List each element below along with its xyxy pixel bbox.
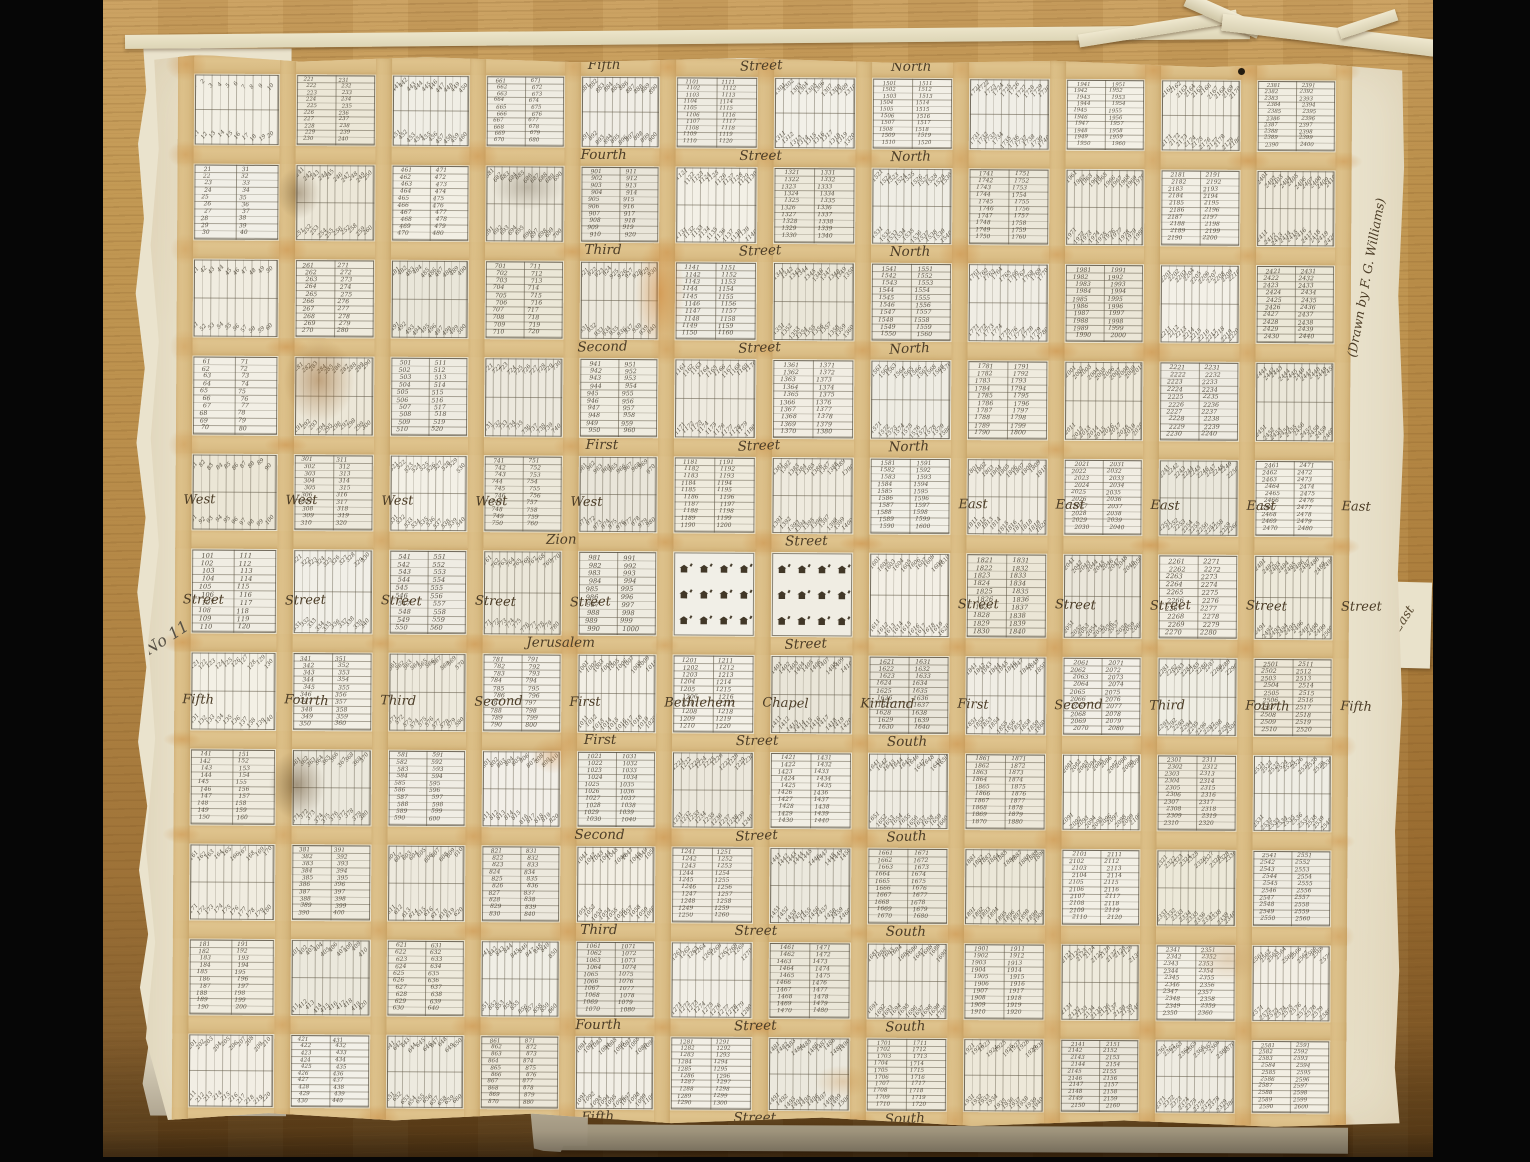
lot-number-column: 1831183218331834183518361837183818391840 [1009,556,1042,635]
city-block: 2221222222232224222522262227222822292230… [1160,362,1238,440]
lot-number: 240 [338,137,370,142]
lot-number: 1330 [781,234,814,240]
city-block: 1211311221321231331241341251351261361271… [191,652,275,730]
lot-number: 826 [491,884,523,890]
lot-number: 1713 [913,1055,945,1061]
temple-icon [720,565,729,573]
lot-number: 305 [304,486,336,492]
street-label-vertical: East [1330,441,1353,557]
lot-number-column: 661662663664665666667668669670 [492,78,524,144]
lot-number: 2021 [1074,462,1106,468]
street-label-text: East [1246,499,1275,514]
temple-icon [679,590,688,598]
lot-number: 2182 [1171,180,1203,186]
lot-number: 1960 [1111,142,1143,148]
lot-number-column: 831832833834835836837838839840 [523,848,555,919]
temple-mark [730,564,733,568]
street-label-vertical: West [172,434,195,550]
street-label-vertical: Street [464,536,487,652]
lot-number: 110 [200,623,235,630]
lot-number: 2040 [1109,526,1141,533]
lot-number: 1230 [742,754,753,768]
lot-number-column: 1191119211931194119511961197119811991200 [717,460,750,531]
lot-number: 2590 [1259,1104,1291,1110]
lot-number: 672 [532,85,564,92]
lot-number: 1915 [1009,975,1041,982]
lot-number-column: 1941194219431944194519461947194819491950 [1072,82,1104,148]
temple-mark [788,564,791,568]
wood-table-surface: 1112123134145156167178189191020221222223… [103,0,1433,1157]
lot-number: 475 [433,197,464,204]
lot-number-column: 431432433434435436437438439440 [332,1037,364,1105]
lot-number: 2480 [1297,527,1329,534]
lot-number: 1670 [876,915,909,922]
street-label-vertical: West [370,436,393,552]
lot-number: 750 [491,522,523,530]
city-block: 1321132213231324132513261327132813291330… [774,168,854,243]
street-label-horizontal: First [537,437,667,454]
city-block: 1501150215031504150515061507150815091510… [873,79,952,149]
lot-number-column: 1741174217431744174517461747174817491750 [975,171,1008,242]
lot-number: 2111 [1107,852,1139,859]
lot-number: 2343 [1163,962,1195,969]
city-block: 6416516426526436536446546456556466566476… [387,1036,463,1108]
lot-number: 1752 [1014,179,1046,185]
lot-number: 1910 [970,1011,1002,1017]
lot-number: 1120 [719,139,752,146]
lot-number: 1160 [718,330,751,338]
lot-number: 864 [487,1059,519,1065]
lot-number: 870 [487,1100,519,1107]
lot-number: 1363 [780,377,813,383]
lot-number: 1196 [720,496,753,502]
lot-number: 1746 [978,207,1010,213]
lot-number-column: 501502503504505506507508509510 [396,360,428,434]
street-label-text: Third [1149,698,1185,713]
lot-number: 1791 [1013,364,1045,371]
lot-number: 1600 [915,525,947,532]
lot-number-column: 2271227222732274227522762277227822792280 [1200,558,1232,637]
temple-site [700,563,711,573]
lot-number-column: 1581158215831584158515861587158815891590 [876,461,909,532]
lot-number: 1710 [875,1102,907,1108]
lot-number: 720 [527,329,559,337]
temple-square-block [674,552,755,635]
lot-number: 906 [588,205,620,212]
city-block: 1011021031041051061071081091101111121131… [192,549,277,633]
lot-number: 2425 [1266,298,1298,304]
lot-number: 2588 [1258,1091,1290,1097]
city-block: 1621162216231624162516261627162816291630… [869,657,948,734]
lot-number: 1650 [938,755,948,769]
lot-number: 74 [241,381,276,388]
city-block: 1341135113421352134313531344135413451355… [774,263,854,340]
temple-icon [699,616,708,624]
lot-number-column: 71727374757677787980 [237,359,272,433]
lot-number: 912 [626,177,658,183]
lot-number-column: 1431143214331434143514361437143814391440 [813,755,846,826]
lot-number-column: 711712713714715716717718719720 [526,263,558,336]
lot-number: 1490 [839,1039,850,1053]
lot-number-column: 221222223224225226227228229230 [302,77,334,143]
lot-number-column: 1661166216631664166516661667166816691670 [874,851,907,922]
lot-number: 1022 [587,761,619,767]
city-block: 2281229122822292228322932284229422852295… [1158,658,1236,735]
lot-number: 879 [524,1093,556,1099]
lot-number-column: 901902903904905906907908909910 [587,169,619,240]
lot-number: 665 [496,104,528,111]
street-label-text: Chapel [762,695,809,711]
lot-number: 2192 [1207,180,1239,186]
lot-number: 1158 [720,316,753,322]
lot-number: 1071 [621,944,653,950]
lot-number-column: 1501150215031504150515061507150815091510 [878,81,911,147]
lot-number: 1064 [586,965,618,971]
lot-number: 503 [400,375,431,382]
city-block: 1021102210231024102510261027102810291030… [578,752,655,827]
lot-number: 662 [496,85,528,91]
lot-number: 981 [588,554,620,562]
lot-number: 1554 [914,288,946,294]
street-label-text: Street [1341,599,1382,614]
street-label-text: Street [285,593,326,609]
city-block: 1401141114021412140314131404141414051415… [771,656,851,733]
lot-number: 916 [623,205,655,211]
lot-number: 1254 [715,872,748,878]
lot-number: 555 [431,585,462,592]
lot-number: 905 [588,198,620,204]
city-block: 1781178217831784178517861787178817891790… [968,361,1047,439]
lot-number: 2145 [1067,1069,1099,1075]
city-block: 2161217121622172216321732164217421652175… [1162,80,1240,150]
lot-number: 1830 [973,628,1005,635]
lot-number-column: 1101110211031104110511061107110811091110 [682,79,715,145]
street-label-vertical: East [1139,440,1162,556]
street-label-horizontal: Street [691,923,821,939]
temple-mark [730,589,733,593]
street-label-vertical: East [1044,440,1067,556]
street-label-vertical: Street [1139,540,1162,656]
lot-number: 430 [297,1099,329,1105]
street-label-horizontal: Fourth [533,1016,663,1033]
lot-number-column: 2511251225132514251525162517251825192520 [1295,661,1327,734]
city-block: 1112123134145156167178189191020 [195,74,279,145]
lot-number: 2400 [1300,143,1332,150]
lot-number: 1829 [972,619,1005,627]
city-block: 9819829839849859869879889899909919929939… [579,552,657,635]
lot-number: 913 [625,184,657,191]
lot-number: 302 [303,465,335,471]
lot-number: 2370 [1224,1042,1235,1056]
city-block: 6816916826926836936846946856956866966876… [486,166,563,241]
lot-number: 1590 [879,525,911,531]
lot-number-column: 1541154215431544154515461547154815491550 [877,266,910,339]
lot-number: 150 [198,816,232,822]
lot-number: 423 [300,1051,332,1058]
city-block: 2081209120822092208320932084209420852095… [1063,755,1140,830]
lot-number: 111 [240,552,275,559]
city-block: 2201221122022212220322132204221422052215… [1161,265,1239,342]
lot-number-column: 1791179217931794179517961797179817991800 [1010,363,1043,437]
lot-number: 1560 [916,332,948,338]
lot-number-column: 341342343344345346347348349350 [299,655,331,728]
lot-number: 850 [548,948,559,960]
lot-number: 2077 [1106,704,1138,710]
city-block: 1941194219431944194519461947194819491950… [1067,80,1144,150]
lot-number: 435 [336,1065,368,1071]
lot-number-column: 181182183184185186187188189190 [195,941,230,1012]
lot-number: 902 [591,176,623,183]
lot-number: 1786 [977,401,1009,407]
lot-number: 1509 [881,134,913,140]
lot-number: 99 [256,519,265,528]
temple-icon [837,617,846,625]
lot-number-column: 1461146214631464146514661467146814691470 [775,945,808,1016]
lot-number: 760 [526,522,558,529]
city-block: 2421242224232424242524262427242824292430… [1257,266,1334,343]
temple-mark [750,590,753,594]
lot-number: 1090 [643,1038,654,1052]
street-label-horizontal: Second [537,338,667,357]
city-block: 1361136213631364136513661367136813691370… [773,360,853,438]
lot-number: 833 [527,863,559,869]
lot-number: 30 [202,231,237,237]
lot-number: 911 [625,170,657,176]
tape-strip-top-right [1221,14,1433,67]
lot-number: 710 [492,329,524,336]
lot-number: 1750 [975,235,1007,242]
lot-number: 514 [434,383,465,389]
lot-number: 510 [397,426,428,433]
lot-number: 600 [429,817,460,824]
street-label-vertical: Fourth [273,635,296,751]
lot-number-column: 511512513514515516517518519520 [431,360,463,434]
lot-number: 227 [303,117,335,122]
lot-number-column: 2261226222632264226522662267226822692270 [1164,557,1196,636]
city-block: 5015025035045055065075085095105115125135… [391,358,467,436]
city-block: 1681169116821692168316931684169416851695… [867,944,946,1019]
city-block: 2581258225832584258525862587258825892590… [1252,1041,1329,1113]
street-label-text: West [183,492,215,508]
temple-site [679,588,690,598]
lot-number: 640 [428,1007,459,1014]
lot-number: 1072 [621,951,653,958]
temple-icon [739,591,748,599]
lot-number: 830 [489,913,521,919]
lot-number: 2000 [1110,333,1142,339]
city-block: 1101110211031104110511061107110811091110… [677,77,757,147]
lot-number-column: 191192193194195196197198199200 [234,942,269,1013]
temple-icon [837,591,846,599]
lot-number: 984 [588,577,620,585]
lot-number: 1912 [1009,954,1041,961]
city-block: 2001201120022012200320132004201420052015… [1065,362,1142,440]
lot-number: 794 [525,679,557,686]
temple-icon [838,566,847,574]
lot-number-column: 781782783784785786787788789790 [489,656,521,729]
lot-number: 989 [584,617,616,624]
lot-number-column: 1991199219931994199519961997199819992000 [1106,267,1138,340]
city-block: 6216226236246256266276286296306316326336… [387,941,463,1016]
city-block: 6016116026126036136046146056156066166076… [388,846,464,921]
lot-number: 2261 [1168,558,1200,565]
lot-number: 1661 [878,851,910,857]
temple-site [699,614,710,624]
lot-number-column: 61626364656667686970 [199,358,234,432]
lot-number-column: 1061106210631064106510661067106810691070 [582,944,614,1015]
lot-number-column: 1211121212131214121512161217121812191220 [715,658,748,731]
lot-number: 1365 [783,392,816,399]
temple-site [680,563,691,573]
lot-number: 1880 [1008,821,1040,827]
street-label-text: Fifth [1340,699,1372,715]
lot-number-column: 9919929939949959969979989991000 [619,554,651,633]
lot-number: 2461 [1264,463,1296,470]
lot-number: 360 [335,721,367,729]
temple-mark [808,590,811,594]
lot-number: 1680 [913,915,946,923]
city-block: 1411421431441451461471481491501511521531… [191,749,275,825]
lot-number-column: 101102103104105106107108109110 [198,551,233,630]
lot-number-column: 1591159215931594159515961597159815991600 [912,461,945,532]
lot-number-column: 1671167216731674167516761677167816791680 [910,851,943,922]
street-label-text: Street [183,592,224,607]
lot-number: 70 [201,425,236,433]
city-block: 2612622632642652662672682692702712722732… [296,260,374,337]
street-label-vertical: Third [1138,640,1161,756]
lot-number: 20 [267,131,276,140]
lot-number: 2158 [1103,1090,1135,1096]
lot-number: 948 [588,413,620,420]
lot-number: 1040 [621,819,653,825]
lot-number-column: 1911191219131914191519161917191819191920 [1006,946,1039,1017]
city-block: 2412512422522432532442542452552462562472… [296,165,374,240]
city-block: 2812912822922832932842942852952862962872… [295,357,373,435]
lot-number: 1640 [914,725,947,733]
plat-map-sheet: 1112123134145156167178189191020221222223… [143,52,1408,1132]
lot-number: 250 [364,171,375,183]
lot-number-column: 1071107210731074107510761077107810791080 [617,944,649,1015]
lot-number: 730 [552,361,563,373]
lot-number: 1030 [586,818,618,825]
city-block: 1661166216631664166516661667166816691670… [868,849,947,924]
lot-number: 632 [430,951,461,957]
city-block: 1001101110021012100310131004101410051015… [578,655,655,732]
lot-number: 1705 [873,1068,905,1074]
lot-number-column: 631632633634635636637638639640 [428,943,460,1014]
temple-site [739,615,750,625]
lot-number: 3 [209,83,216,89]
lot-number: 2302 [1167,765,1199,771]
lot-number: 824 [489,870,521,876]
city-block: 1961197119621972196319731964197419651975… [1066,170,1143,245]
lot-number: 2589 [1257,1098,1289,1105]
lot-number: 551 [434,553,465,560]
lot-number-column: 2351235223532354235523562357235823592360 [1198,948,1230,1019]
lot-number: 915 [623,198,655,204]
lot-number: 1431 [817,755,850,762]
lot-number: 391 [334,847,366,854]
lot-number-column: 2501250225032504250525062507250825092510 [1260,661,1292,734]
lot-number: 1990 [1075,333,1107,340]
lot-number: 1288 [679,1088,712,1094]
lot-number-column: 911912913914915916917918919920 [622,169,654,240]
city-block: 1281128212831284128512861287128812891290… [671,1037,751,1109]
lot-number: 383 [302,862,334,868]
temple-icon [679,616,688,624]
lot-number-column: 1821182218231824182518261827182818291830 [972,556,1005,635]
lot-number: 2389 [1263,136,1295,143]
lot-number: 516 [432,397,463,404]
street-label-text: Fifth [182,692,214,708]
lot-number: 2600 [1294,1105,1326,1111]
lot-number: 1300 [713,1101,746,1107]
temple-mark [710,589,713,593]
street-label-vertical: Street [1044,540,1067,656]
lot-number-column: 31323334353637383940 [239,167,274,238]
lot-number: 831 [526,849,558,855]
city-block: 1461146214631464146514661467146814691470… [769,943,849,1018]
city-block: 5815825835845855865875885895905915925935… [389,751,465,826]
lot-number: 1592 [915,468,947,475]
street-label-horizontal: Third [534,922,664,938]
lot-number-column: 541542543544545546547548549550 [395,553,427,632]
street-label-vertical: West [274,435,297,551]
lot-number-column: 2301230223032304230523062307230823092310 [1163,757,1195,828]
street-label-vertical: Street [947,539,970,655]
street-label-text: Second [1054,697,1103,713]
lot-number: 120 [238,623,273,631]
lot-number-column: 1321132213231324132513261327132813291330 [780,170,813,241]
lot-number: 1594 [913,483,945,489]
city-block: 1241124212431244124512461247124812491250… [672,847,752,922]
lot-number: 2233 [1202,379,1234,386]
lot-number: 2437 [1298,313,1330,319]
street-label-horizontal: Street [741,532,871,550]
lot-number: 1550 [880,331,913,339]
lot-number-column: 1981198219831984198519861987198819891990 [1071,267,1103,340]
city-block: 7017027037047057067077087097107117127137… [486,261,563,338]
lot-number: 1903 [971,961,1003,967]
lot-number: 2431 [1300,269,1332,276]
lot-number: 1981 [1075,267,1107,273]
lot-number: 840 [524,913,556,920]
city-block: 7217317227327237337247347257357267367277… [485,358,562,436]
lot-number: 180 [263,905,274,917]
lot-number: 1783 [974,378,1007,385]
lot-number-column: 2471247224732474247524762477247824792480 [1296,463,1328,534]
lot-number: 1251 [717,850,750,856]
lot-number-column: 671672673674675676677678679680 [527,78,559,144]
lot-number: 200 [236,1006,271,1013]
lot-number-column: 2071207220732074207520762077207820792080 [1104,660,1136,733]
temple-icon [797,591,806,599]
lot-number: 1672 [913,858,945,865]
plat-grid: 1112123134145156167178189191020221222223… [149,52,1407,60]
city-block: 8818918828928838938848948858958868968878… [582,77,659,147]
lot-number: 2440 [1298,334,1330,341]
lot-number: 2080 [1108,726,1140,733]
lot-number: 2541 [1261,854,1293,860]
temple-icon [817,591,826,599]
lot-number: 1587 [878,504,910,510]
lot-number-column: 2221222222232224222522262227222822292230 [1165,364,1197,438]
lot-number-column: 621622623624625626627628629630 [393,943,425,1014]
temple-mark [808,564,811,568]
lot-number: 465 [398,197,429,203]
lot-number: 143 [201,766,235,772]
street-label-vertical: Second [463,636,486,752]
